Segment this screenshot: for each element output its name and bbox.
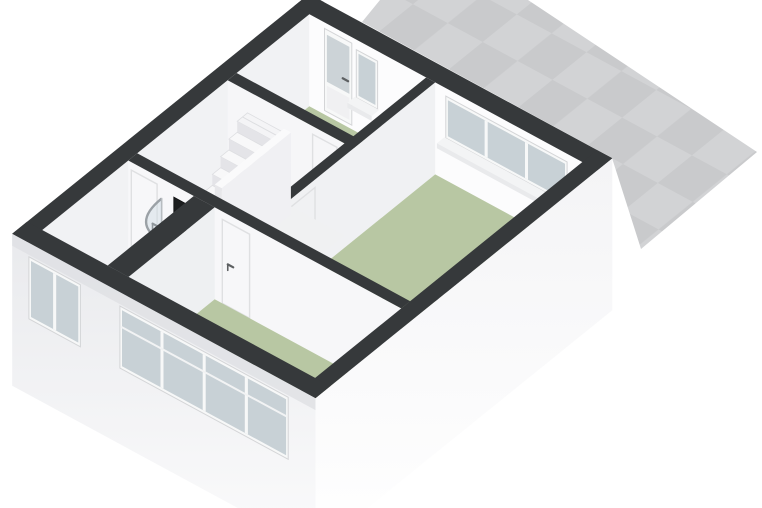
bedroomright-window-band-post (485, 120, 488, 158)
bedroomfront-window-band-post (161, 331, 164, 389)
bedroomfront-window-band-post (245, 377, 248, 435)
bedroomright-window-band-post (525, 142, 528, 180)
floorplan-3d-view (0, 0, 762, 508)
floorplan-canvas (0, 0, 762, 508)
bathroom-window-post (53, 273, 56, 331)
bedroomfront-window-band-post (203, 354, 206, 412)
